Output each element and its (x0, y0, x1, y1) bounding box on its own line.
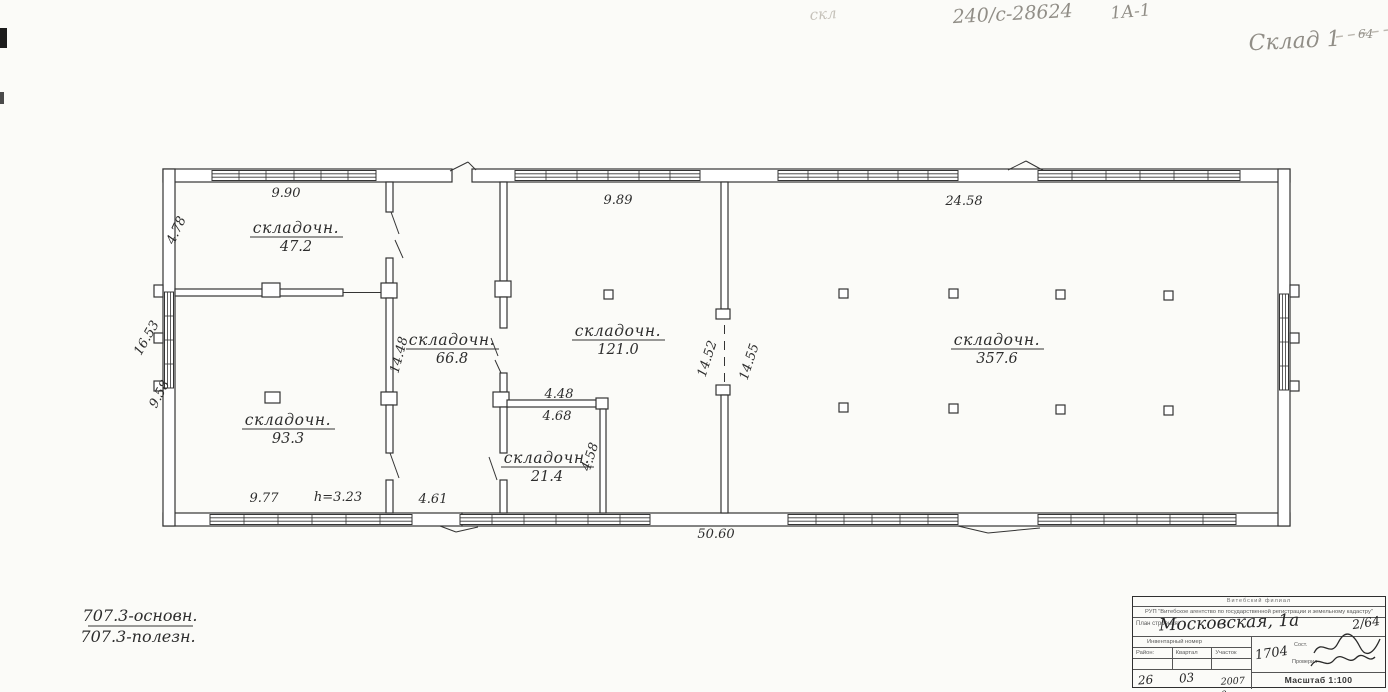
pier (716, 385, 730, 395)
room-label: складочн. (253, 219, 339, 237)
area-totals: 707.3-основн. 707.3-полезн. (80, 606, 197, 646)
stamp-left-table: Инвентарный номер Район: Квартал Участок… (1133, 637, 1251, 689)
dim-right-top: 24.58 (944, 194, 982, 209)
signature (1308, 652, 1378, 672)
dim-height-note: h=3.23 (314, 490, 362, 505)
window-strip (212, 171, 376, 181)
column (1056, 405, 1065, 414)
dim-small-top: 4.48 (544, 387, 574, 402)
room-area: 93.3 (272, 431, 304, 447)
handwritten-number: 1704 (1254, 644, 1289, 663)
plot-value (1212, 659, 1251, 669)
room-area: 66.8 (436, 351, 468, 367)
window-strip (1280, 294, 1289, 390)
block-header: Квартал (1173, 648, 1213, 658)
pencil-title: Склад 1 (1248, 27, 1341, 57)
room-label: складочн. (954, 331, 1040, 349)
title-block: Витебский филиал РУП "Витебское агентств… (1132, 596, 1386, 688)
handwritten-sheet-number: 2/64 (1351, 613, 1381, 632)
pencil-faint-note: скл (809, 4, 837, 24)
total-usable-area: 707.3-полезн. (80, 627, 195, 646)
pencil-doc-number: 240/с-28624 (951, 0, 1073, 28)
dim-small-right: 4.58 (579, 441, 603, 474)
district-value (1133, 659, 1173, 669)
pier (495, 281, 511, 297)
column (1056, 290, 1065, 299)
room-area: 21.4 (530, 469, 563, 485)
window-strip (788, 515, 958, 525)
room-label: складочн. (504, 449, 590, 467)
date-year: 2007 г. (1220, 675, 1251, 692)
dim-bottom-corridor: 4.61 (418, 492, 448, 507)
dim-top-left: 9.90 (272, 186, 301, 201)
pier (596, 398, 608, 409)
dim-mid-vert-left: 14.52 (695, 339, 721, 379)
room-area: 357.6 (976, 351, 1018, 367)
room-labels: складочн. 47.2 складочн. 93.3 складочн. … (242, 219, 1044, 485)
pier (381, 392, 397, 405)
column (265, 392, 280, 403)
dim-bottom-total: 50.60 (697, 527, 734, 542)
stamp-signature-box: 1704 Сост. Проверил Масштаб 1:100 (1251, 637, 1385, 689)
window-strip (1038, 515, 1236, 525)
pencil-code: 1А-1 (1110, 0, 1152, 23)
compiled-label: Сост. (1294, 642, 1307, 648)
column (604, 290, 613, 299)
window-strip (210, 515, 412, 525)
dim-small-inner: 4.68 (542, 409, 572, 424)
handwritten-address: Московская, 1а (1159, 611, 1300, 636)
date-day: 26 (1138, 672, 1154, 687)
dimension-labels: 9.90 4.78 16.53 9.58 9.77 h=3.23 4.61 14… (131, 186, 982, 542)
window-strip (778, 171, 958, 181)
pier (262, 283, 280, 297)
column (1164, 291, 1173, 300)
room-area: 47.2 (279, 239, 312, 255)
pier (716, 309, 730, 319)
floorplan-drawing: складочн. 47.2 складочн. 93.3 складочн. … (0, 0, 1388, 692)
column (839, 403, 848, 412)
dim-mid-vert-right: 14.55 (737, 342, 763, 382)
date-month: 03 (1178, 670, 1195, 686)
block-value (1173, 659, 1213, 669)
column (839, 289, 848, 298)
pencil-page-number: 64 (1358, 27, 1373, 41)
district-header: Район: (1133, 648, 1173, 658)
date-row: 26 03 2007 г. (1133, 670, 1251, 689)
pier (381, 283, 397, 298)
room-label: складочн. (575, 322, 661, 340)
plot-header: Участок (1212, 648, 1251, 658)
dim-bottom-left: 9.77 (250, 491, 280, 506)
dim-mid-top: 9.89 (604, 193, 633, 208)
room-label: складочн. (409, 331, 495, 349)
window-strip (515, 171, 700, 181)
column (949, 404, 958, 413)
pencil-annotations: скл 240/с-28624 1А-1 Склад 1 64 (809, 0, 1373, 56)
scanned-floorplan-sheet: складочн. 47.2 складочн. 93.3 складочн. … (0, 0, 1388, 692)
column (949, 289, 958, 298)
window-strip (460, 515, 650, 525)
room-label: складочн. (245, 411, 331, 429)
column (1164, 406, 1173, 415)
window-strip (1038, 171, 1240, 181)
scale-label: Масштаб 1:100 (1252, 672, 1385, 689)
scan-artifacts (0, 28, 1388, 104)
total-main-area: 707.3-основн. (83, 606, 198, 625)
room-area: 121.0 (597, 342, 639, 358)
window-strip (165, 292, 174, 388)
stamp-org-line1: Витебский филиал (1133, 597, 1385, 607)
inventory-number-label: Инвентарный номер (1133, 637, 1251, 648)
